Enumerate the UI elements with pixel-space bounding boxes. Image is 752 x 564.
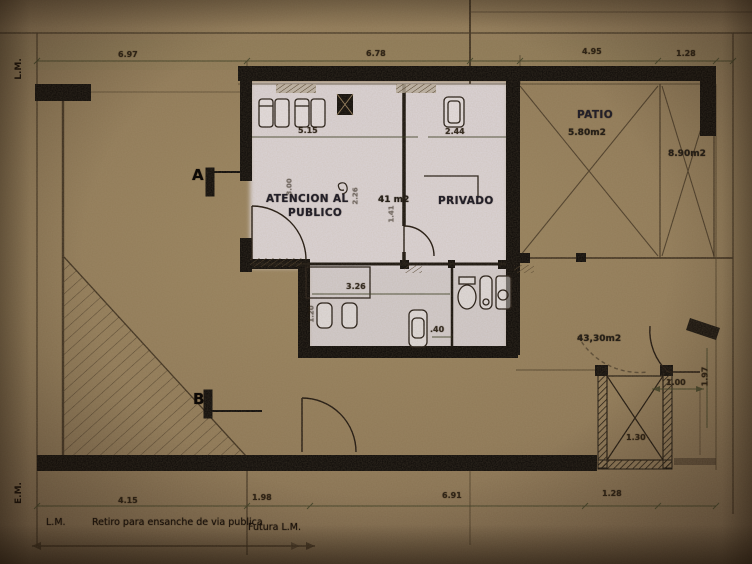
dimension-label: 3.26 xyxy=(346,282,366,291)
retiro-note: Retiro para ensanche de via publica xyxy=(92,517,263,528)
dimension-label: 1.97 xyxy=(700,367,709,387)
dimension-label: 6.97 xyxy=(118,50,138,59)
room-label-atencion-line2: PUBLICO xyxy=(288,207,342,219)
dimension-label: 4.15 xyxy=(118,496,138,505)
boundary-label-em: E.M. xyxy=(14,482,24,504)
dimension-label: 1.28 xyxy=(676,49,696,58)
dimension-label: 5.15 xyxy=(298,126,318,135)
dimension-label: 1.20 xyxy=(308,305,316,322)
room-label-atencion-line1: ATENCION AL xyxy=(266,193,349,205)
futura-lm-label: Futura L.M. xyxy=(248,522,301,533)
room-label-privado: PRIVADO xyxy=(438,195,494,207)
dimension-label: 1.41 xyxy=(388,205,396,222)
dimension-label: 6.91 xyxy=(442,491,462,500)
dimension-label: 1.28 xyxy=(602,489,622,498)
room-area-yard: 43,30m2 xyxy=(577,334,621,344)
section-marker-a: A xyxy=(192,166,204,184)
dimension-label: 2.26 xyxy=(352,187,360,204)
room-area-atencion: 41 m2 xyxy=(378,195,409,205)
dimension-label: 6.78 xyxy=(366,49,386,58)
dimension-label: 3.00 xyxy=(286,178,294,195)
section-marker-b: B xyxy=(193,390,204,408)
room-area-patio: 5.80m2 xyxy=(568,128,606,138)
dimension-label: 2.44 xyxy=(445,127,465,136)
room-label-patio: PATIO xyxy=(577,109,613,121)
dimension-label: 1.98 xyxy=(252,493,272,502)
dimension-label: 4.95 xyxy=(582,47,602,56)
boundary-label-lm-bottom: L.M. xyxy=(46,517,66,528)
room-area-side: 8.90m2 xyxy=(668,149,706,159)
dimension-label: .40 xyxy=(430,325,444,334)
labels-layer: ATENCION AL PUBLICO 41 m2 PRIVADO PATIO … xyxy=(0,0,752,564)
floor-plan-photo: ATENCION AL PUBLICO 41 m2 PRIVADO PATIO … xyxy=(0,0,752,564)
dimension-label: 1.00 xyxy=(666,378,686,387)
boundary-label-lm-left: L.M. xyxy=(14,58,24,80)
dimension-label: 1.30 xyxy=(626,433,646,442)
